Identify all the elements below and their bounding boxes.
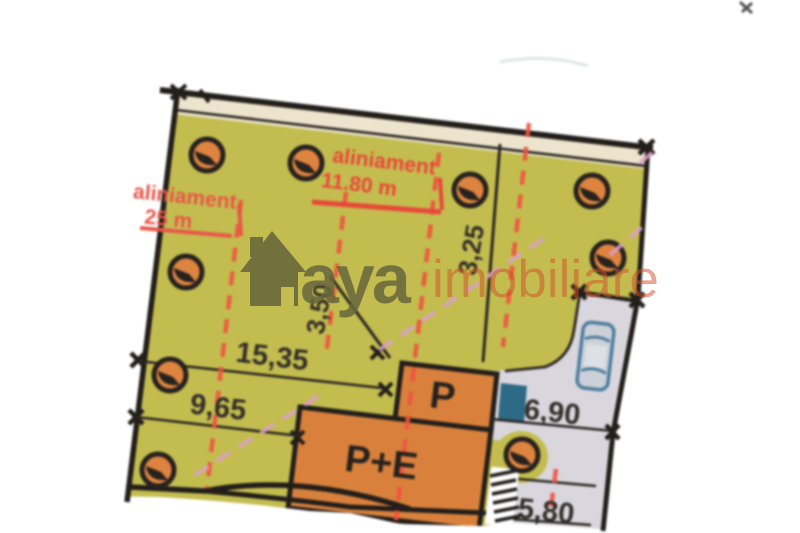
svg-text:P+E: P+E [343, 438, 420, 489]
svg-text:P: P [427, 374, 457, 419]
svg-text:5,80: 5,80 [516, 493, 575, 531]
svg-text:9,65: 9,65 [188, 388, 248, 427]
svg-text:imobiliare: imobiliare [432, 250, 659, 309]
svg-text:6,90: 6,90 [522, 394, 581, 432]
svg-text:aya: aya [300, 240, 412, 318]
